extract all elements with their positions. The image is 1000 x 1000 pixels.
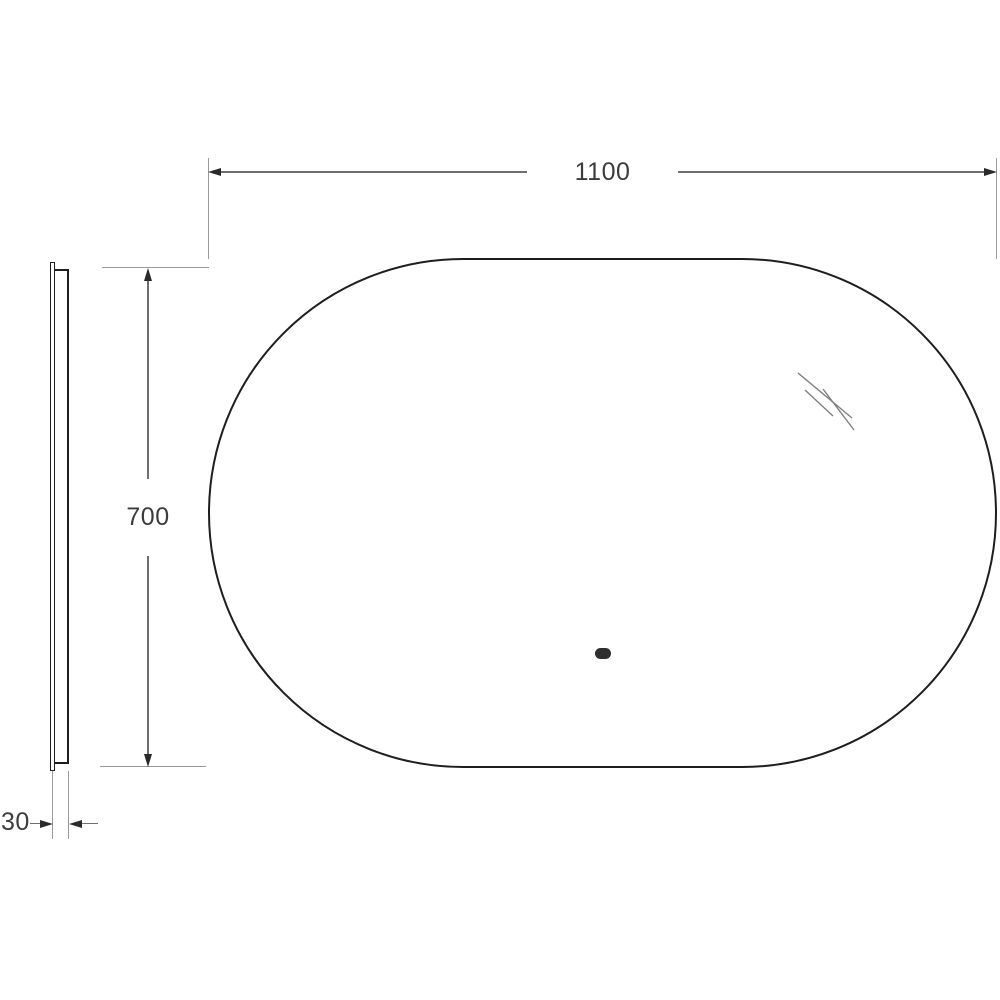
dimension-width-line-left [221,171,527,172]
side-profile-glass-edge [50,262,55,771]
dimension-depth-arrow-right [69,817,98,830]
dimension-depth-line-left [30,823,40,824]
mirror-front-outline [208,258,997,768]
arrowhead-up-icon [144,268,152,281]
dimension-depth-arrow-left [30,817,53,830]
dimension-width-line-right [678,171,984,172]
dimension-width-label: 1100 [527,160,679,185]
dimension-height-label: 700 [126,505,169,530]
dimension-height-line-bottom [147,556,148,754]
dimension-width: 1100 [208,160,997,184]
side-profile-body [53,269,69,764]
dimension-depth-label: 30 [1,810,30,835]
arrowhead-left-icon [69,820,82,828]
mirror-shine-icon [780,360,875,440]
dimension-height: 700 [136,268,160,767]
touch-sensor-dot [595,648,611,659]
dimension-height-line-top [147,281,148,479]
arrowhead-right-icon [984,168,997,176]
arrowhead-down-icon [144,754,152,767]
arrowhead-right-icon [40,820,53,828]
arrowhead-left-icon [208,168,221,176]
dimension-depth-line-right [82,823,98,824]
